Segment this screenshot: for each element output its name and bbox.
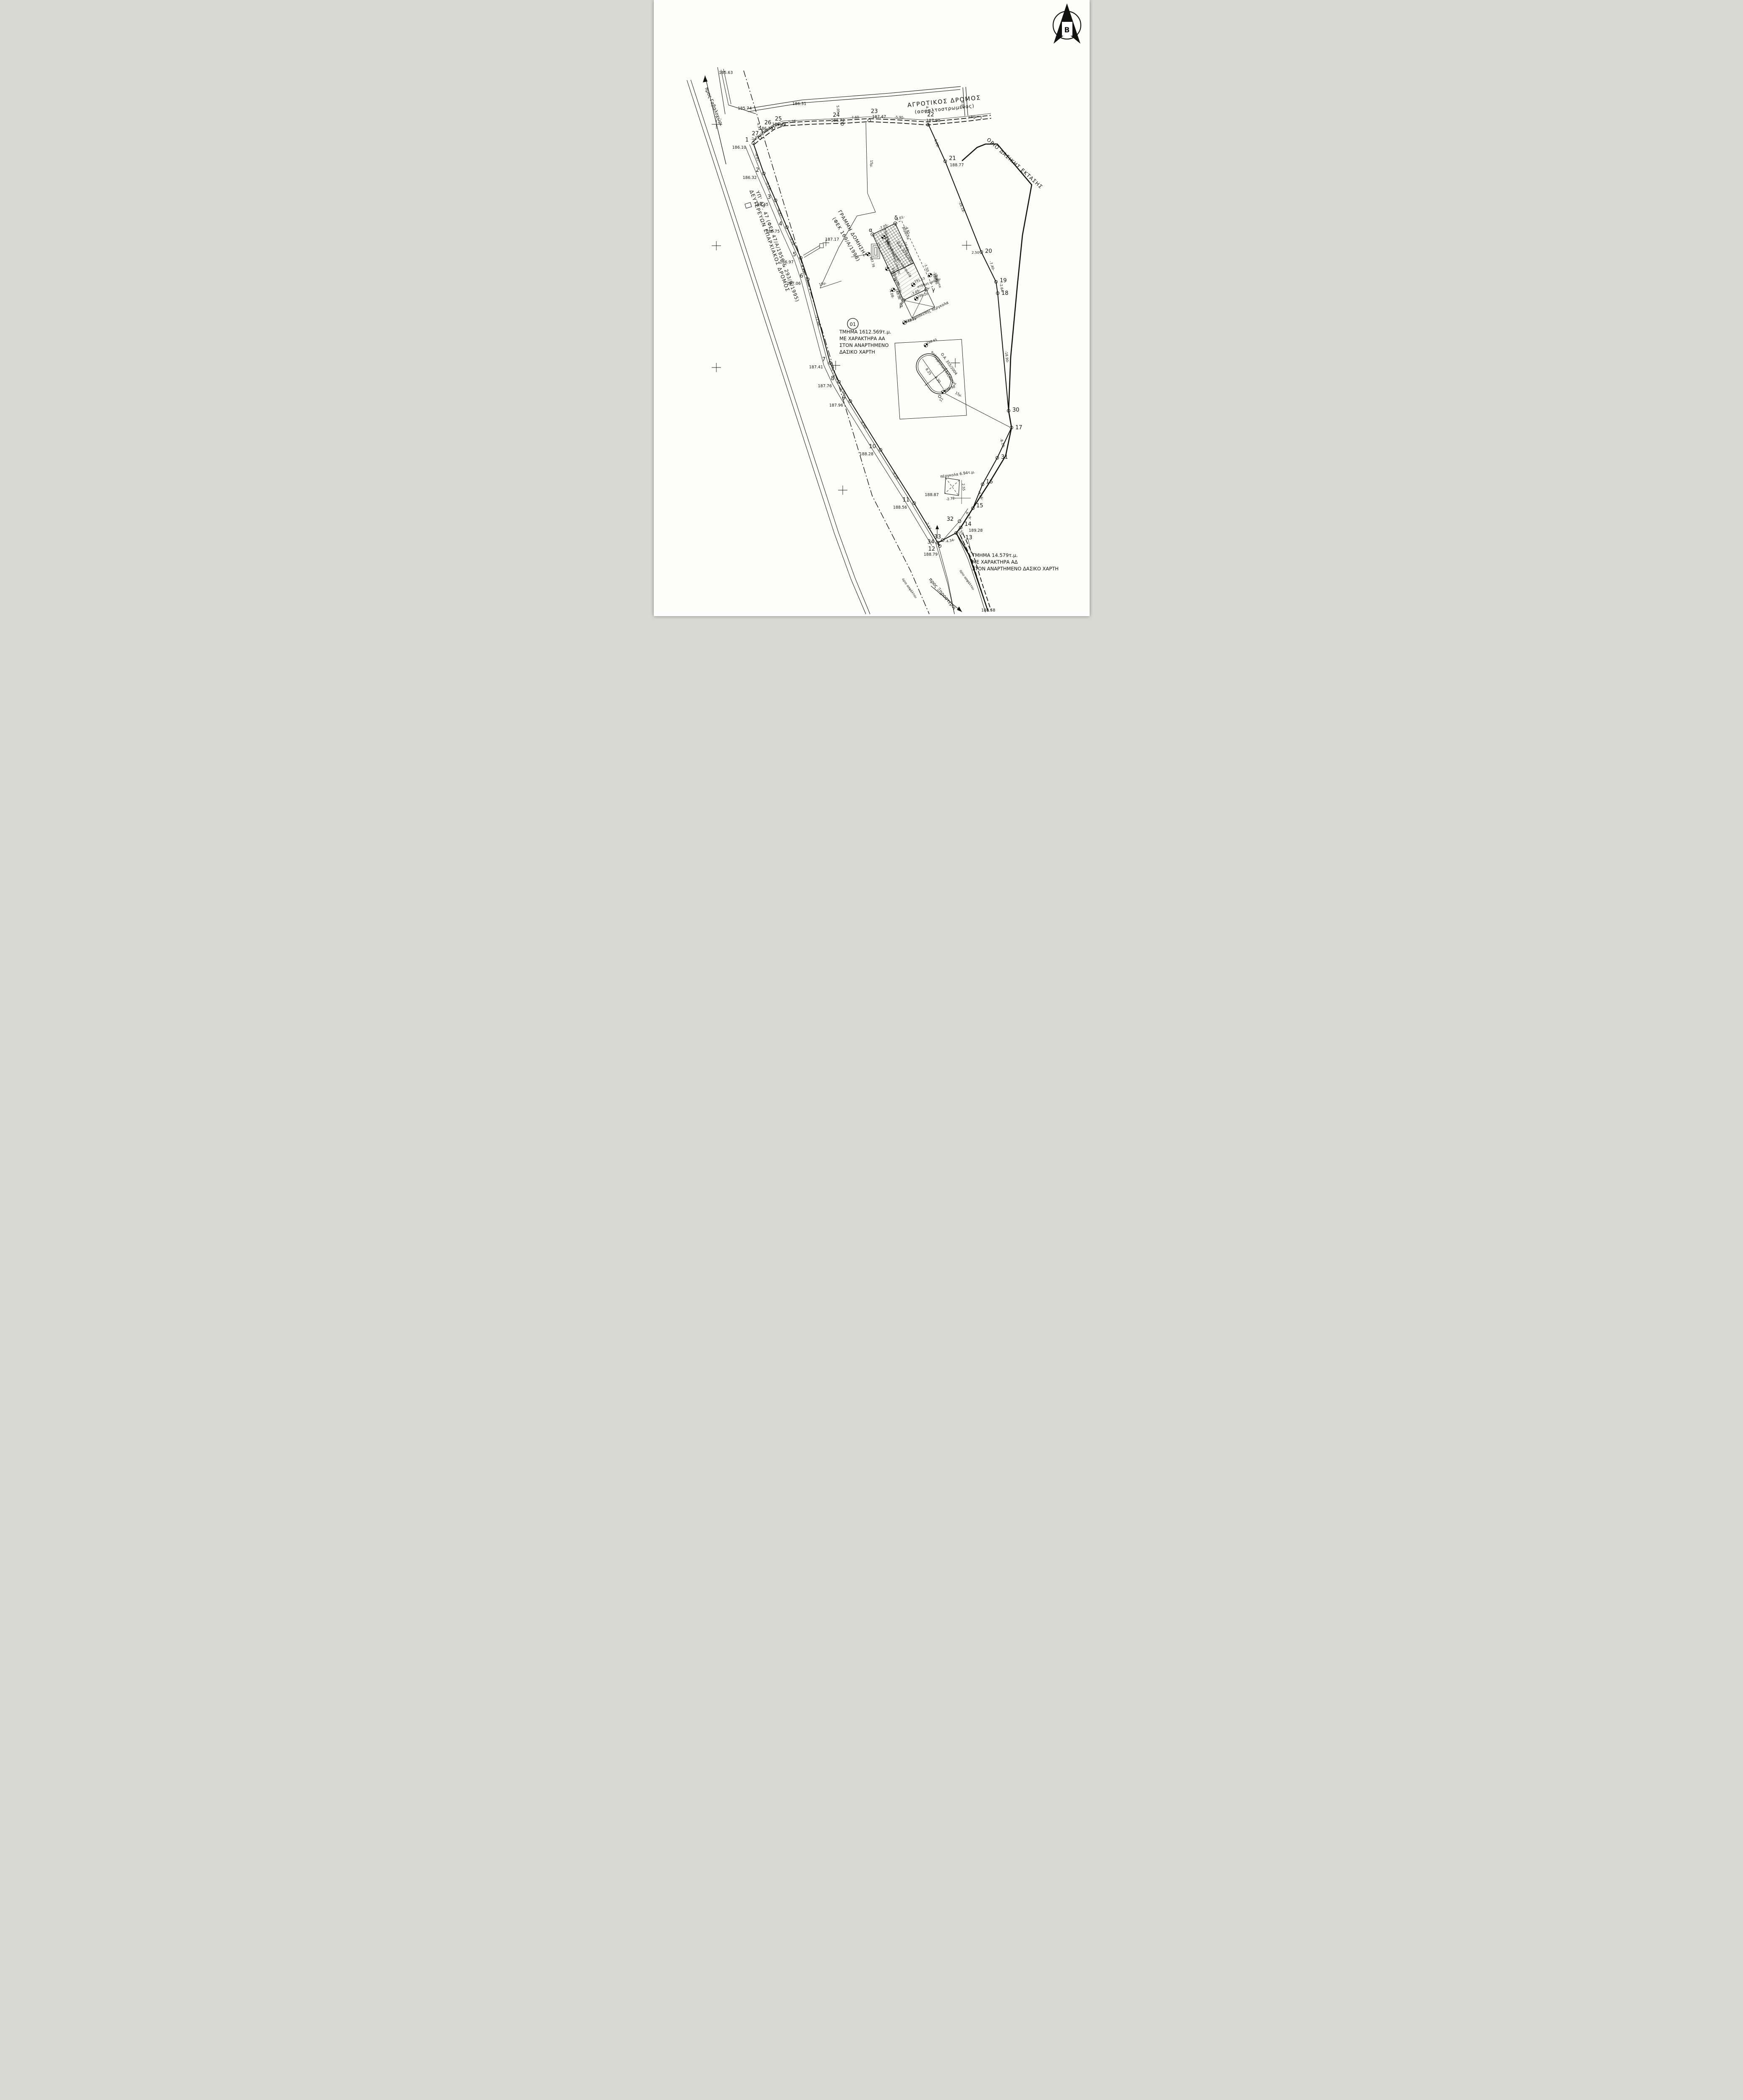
section-1-annotation: 01 ΤΜΗΜΑ 1612.569τ.μ. ΜΕ ΧΑΡΑΚΤΗΡΑ ΑΑ ΣΤ… (839, 318, 891, 355)
section-2-line1: ΤΜΗΜΑ 14.579τ.μ. (972, 552, 1018, 558)
elevation-188-58: 188.58 (981, 608, 995, 613)
point-17: 17 (1015, 425, 1022, 431)
dist-33-13: -4.34- (945, 538, 955, 544)
point-15: 15 (976, 503, 983, 509)
point-10-elev: 188.28 (859, 452, 873, 457)
dist-24-23: -7.60- (850, 115, 860, 120)
width-505: 5.05 (836, 105, 840, 113)
point-11-elev: 188.56 (893, 505, 907, 510)
point-31: 31 (1001, 454, 1008, 460)
survey-plan-sheet: ΔΕΥΤΕΡΕΥΩΝ ΕΠΑΡΧΙΑΚΟΣ ΔΡΟΜΟΣ ΥΠ' ΑΡ. 47 … (654, 0, 1090, 616)
pool-terrace (895, 339, 967, 419)
dist-20-19: -7.40- (988, 261, 996, 271)
section-1-line4: ΔΑΣΙΚΟ ΧΑΡΤΗ (839, 349, 875, 355)
point-4-elev: 186.75 (765, 229, 779, 234)
point-7-elev: 187.41 (809, 365, 823, 370)
benchmark-terrace: 188.25 (902, 317, 917, 325)
point-8-elev: 187.76 (818, 384, 831, 388)
point-2: 2 (755, 167, 759, 173)
asphalt-edge-label-left: όριο ασφάλτου (901, 577, 918, 599)
point-34: 34 (927, 539, 934, 545)
point-12-elev: 188.79 (923, 552, 937, 557)
point-32: 32 (946, 516, 954, 522)
swimming-pool: 8.25 4.30 κολυμβητική δεξαμενή Ο.Α. 355/… (895, 338, 967, 419)
section-1-line2: ΜΕ ΧΑΡΑΚΤΗΡΑ ΑΑ (839, 336, 885, 341)
point-11: 11 (902, 497, 910, 503)
distance-labels: -2.22- -3.09- -3.73- -5.26- -7.60- -5.90… (750, 101, 1009, 544)
pergola-label: πέργκολα 6.94τ.μ. (940, 470, 975, 479)
section-1-line1: ΤΜΗΜΑ 1612.569τ.μ. (839, 329, 891, 335)
point-23-elev: 187.47 (872, 115, 886, 119)
roadside-structure (745, 202, 752, 208)
point-21: 21 (949, 155, 956, 162)
benchmark-pool-se: 188.98 (941, 385, 956, 394)
pool-length: 8.25 (925, 367, 932, 376)
setback-15m-pool: 15μ. (954, 391, 963, 398)
setback-15m-top: 15μ. (869, 160, 873, 168)
dist-4-5: -5.18- (789, 236, 796, 247)
point-6: 6 (799, 273, 803, 279)
point-9-elev: 187.96 (829, 403, 843, 408)
point-5-elev: 186.97 (779, 260, 793, 265)
house: α δ γ β 2ΙΚ - διώροφη κατοικία Ο.Α. 379/… (851, 215, 949, 324)
dist-3-4: -4.87- (776, 207, 783, 218)
asphalt-edge-line (938, 509, 968, 614)
width-250: 2.50 (972, 251, 979, 255)
dist-21-20: -16.18- (957, 201, 965, 213)
elevation-185-63: 185.63 (719, 71, 733, 75)
retaining-wall: 187.17 (803, 237, 839, 257)
pergola-height: 2.55 (961, 483, 966, 491)
point-6-elev: 187.06 (786, 281, 800, 286)
provincial-road: ΔΕΥΤΕΡΕΥΩΝ ΕΠΑΡΧΙΑΚΟΣ ΔΡΟΜΟΣ ΥΠ' ΑΡ. 47 … (687, 71, 954, 614)
road-centerline (744, 71, 929, 614)
dist-25-24: -5.26- (787, 119, 797, 124)
point-23: 23 (871, 108, 878, 115)
point-14: 14 (965, 521, 972, 528)
small-arrow-icon (936, 525, 939, 529)
asphalt-edge-label-right: όριο ασφάλτου (959, 569, 975, 591)
point-26: 26 (764, 120, 771, 126)
width-431: 4.31 (756, 123, 761, 131)
dim-150: -1.50 (923, 263, 929, 272)
dist-18-30: -18.90- (1004, 351, 1009, 363)
north-arrow: Β (1053, 3, 1081, 44)
section-2-line3: ΣΤΟΝ ΑΝΑΡΤΗΜΕΝΟ ΔΑΣΙΚΟ ΧΑΡΤΗ (972, 566, 1059, 572)
dist-5-6: -4.93- (799, 263, 806, 274)
to-xirosterni-label: προς Ξηροστέρνι (928, 577, 957, 611)
point-2-elev: 186.32 (742, 176, 756, 180)
pergola: πέργκολα 6.94τ.μ. -2.72- 2.55 188.87 (925, 470, 975, 504)
point-7: 7 (822, 357, 825, 363)
benchmark-pool-north: 188.65 (924, 338, 938, 347)
point-1: 1 (745, 137, 748, 143)
forest-boundary-label: ΟΡΙΟ ΔΑΣΙΚΗΣ ΕΚΤΑΣΗΣ (986, 136, 1044, 190)
dist-9-10: -8.40- (860, 420, 868, 430)
point-30: 30 (1012, 407, 1020, 413)
dist-19-18: -2.64- (999, 283, 1004, 293)
pergola-elevation: 188.87 (925, 493, 938, 497)
point-24: 24 (833, 112, 840, 118)
section-1-id: 01 (849, 321, 856, 327)
direction-arrow-icon (703, 76, 708, 82)
dist-17-31: -8.19- (999, 438, 1006, 449)
point-10: 10 (869, 444, 876, 450)
direction-arrow-icon (957, 606, 962, 612)
west-elevation: 187.78 (869, 256, 875, 268)
point-25: 25 (775, 116, 782, 122)
pool-se-elevation: 188.98 (944, 385, 956, 392)
pool-north-elevation: 188.65 (926, 338, 938, 345)
dist-11-12: -7.17- (924, 521, 932, 531)
dist-22-21: -6.26- (933, 138, 940, 148)
point-13: 13 (965, 535, 972, 541)
point-3-elev: 186.45 (754, 202, 768, 207)
point-3: 3 (767, 194, 771, 200)
corner-gamma: γ (932, 287, 935, 293)
point-1-elev: 186.10 (732, 145, 746, 150)
point-20: 20 (985, 248, 992, 255)
pergola-width: -2.72- (946, 496, 956, 501)
setback-15m-left: 15μ. (818, 281, 827, 287)
dist-2-3: -5.19- (765, 181, 772, 191)
point-22-elev: 187.98 (926, 118, 940, 123)
point-5: 5 (792, 252, 796, 258)
point-21-elev: 188.77 (950, 163, 964, 168)
to-gavalochori-label: προς Γαβαλοχώρι (703, 87, 724, 126)
topographic-drawing: ΔΕΥΤΕΡΕΥΩΝ ΕΠΑΡΧΙΑΚΟΣ ΔΡΟΜΟΣ ΥΠ' ΑΡ. 47 … (654, 0, 1090, 616)
section-2-annotation: ΤΜΗΜΑ 14.579τ.μ. ΜΕ ΧΑΡΑΚΤΗΡΑ ΑΔ ΣΤΟΝ ΑΝ… (968, 538, 1059, 572)
dist-6-7: -11.86- (814, 315, 821, 327)
section-1-line3: ΣΤΟΝ ΑΝΑΡΤΗΜΕΝΟ (839, 342, 889, 348)
pool-width: 4.30 (934, 375, 941, 384)
point-24-elev: 186.72 (831, 118, 844, 123)
corner-alpha: α (869, 227, 873, 234)
dist-23-22: -5.90- (894, 115, 904, 119)
point-33: 33 (934, 534, 941, 540)
point-16: 16 (986, 479, 993, 485)
parcel-boundary (753, 123, 1012, 614)
width-501: 5.01 (960, 101, 965, 109)
point-12: 12 (928, 546, 935, 552)
elevation-186-31: 186.31 (792, 102, 806, 106)
dist-10-11: -9.24- (891, 470, 900, 481)
north-letter: Β (1064, 26, 1069, 34)
point-14-elev: 189.28 (969, 528, 983, 533)
elevation-187-17: 187.17 (825, 237, 839, 242)
section-2-line2: ΜΕ ΧΑΡΑΚΤΗΡΑ ΑΔ (972, 559, 1018, 565)
point-4: 4 (778, 221, 782, 227)
